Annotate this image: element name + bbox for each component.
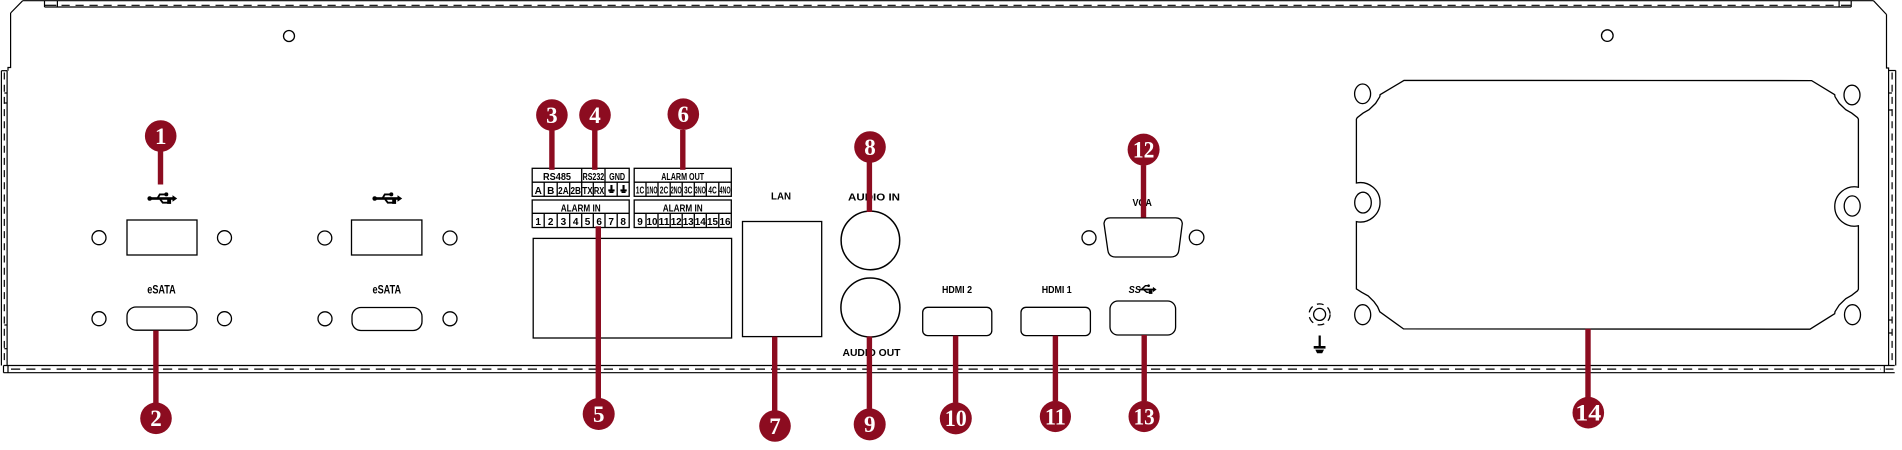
svg-text:7: 7 [608,217,614,228]
svg-text:2: 2 [548,217,554,228]
svg-text:eSATA: eSATA [147,283,176,297]
svg-text:11: 11 [659,217,670,228]
svg-text:B: B [547,186,554,197]
svg-text:2C: 2C [660,186,669,197]
svg-text:11: 11 [1045,404,1066,429]
svg-text:RS485: RS485 [543,172,571,183]
svg-text:12: 12 [671,217,682,228]
svg-text:4NO: 4NO [720,186,731,197]
svg-text:4: 4 [589,103,601,128]
svg-text:TX: TX [582,186,593,197]
svg-text:4C: 4C [708,186,717,197]
svg-text:A: A [535,186,542,197]
svg-text:RX: RX [594,186,605,197]
svg-text:10: 10 [647,217,658,228]
svg-text:7: 7 [769,414,781,439]
svg-text:8: 8 [864,135,876,160]
svg-text:3NO: 3NO [695,186,706,197]
svg-text:HDMI 2: HDMI 2 [942,285,972,296]
svg-text:eSATA: eSATA [373,283,402,297]
svg-text:ALARM IN: ALARM IN [561,204,601,215]
svg-text:AUDIO IN: AUDIO IN [848,192,900,203]
svg-text:1: 1 [155,124,167,149]
svg-text:8: 8 [620,217,626,228]
svg-text:3: 3 [561,217,567,228]
svg-text:9: 9 [637,217,643,228]
svg-text:14: 14 [1575,401,1602,426]
svg-text:9: 9 [864,412,876,437]
svg-text:3: 3 [546,103,558,128]
svg-text:SS: SS [1129,284,1141,296]
svg-text:3C: 3C [684,186,693,197]
svg-text:2A: 2A [558,186,569,197]
svg-text:5: 5 [593,402,605,427]
svg-text:2NO: 2NO [671,186,682,197]
svg-text:13: 13 [683,217,694,228]
svg-text:6: 6 [678,102,690,127]
svg-text:12: 12 [1133,137,1155,162]
svg-text:RS232: RS232 [583,172,605,183]
svg-text:13: 13 [1134,404,1155,429]
svg-text:ALARM IN: ALARM IN [663,204,703,215]
svg-text:1C: 1C [636,186,645,197]
svg-text:2B: 2B [570,186,581,197]
svg-text:16: 16 [720,217,731,228]
svg-text:ALARM OUT: ALARM OUT [661,172,704,183]
svg-text:1: 1 [535,217,541,228]
svg-text:2: 2 [150,406,162,431]
svg-text:15: 15 [707,217,718,228]
svg-text:10: 10 [945,406,967,431]
svg-text:GND: GND [609,172,625,183]
svg-text:HDMI 1: HDMI 1 [1042,285,1072,296]
svg-text:1NO: 1NO [647,186,658,197]
svg-text:4: 4 [573,217,579,228]
svg-text:5: 5 [585,217,591,228]
svg-text:14: 14 [695,217,706,228]
svg-text:LAN: LAN [771,192,791,203]
